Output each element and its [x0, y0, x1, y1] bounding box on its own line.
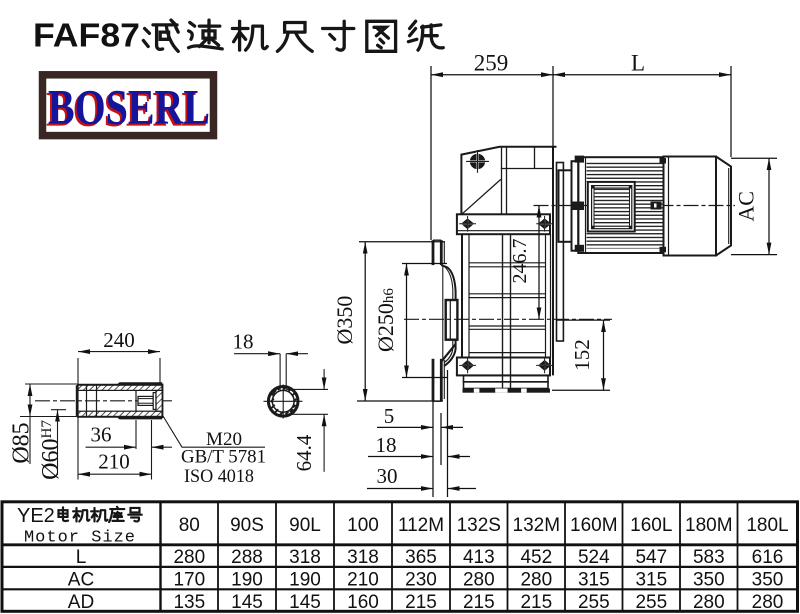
svg-text:280: 280: [752, 592, 784, 613]
svg-text:132S: 132S: [457, 515, 501, 536]
svg-text:Ø85: Ø85: [9, 422, 35, 463]
svg-text:210: 210: [347, 570, 379, 591]
svg-text:L: L: [76, 547, 87, 568]
svg-text:135: 135: [173, 592, 205, 613]
svg-text:350: 350: [693, 570, 725, 591]
svg-text:ISO 4018: ISO 4018: [184, 466, 254, 487]
svg-text:180M: 180M: [685, 515, 733, 536]
svg-text:215: 215: [463, 592, 495, 613]
svg-text:280: 280: [173, 547, 205, 568]
svg-text:246.7: 246.7: [509, 239, 531, 284]
svg-text:365: 365: [405, 547, 437, 568]
svg-text:145: 145: [231, 592, 263, 613]
svg-text:215: 215: [405, 592, 437, 613]
svg-text:255: 255: [578, 592, 610, 613]
svg-text:L: L: [631, 51, 645, 76]
svg-text:5: 5: [384, 404, 395, 428]
svg-text:452: 452: [520, 547, 552, 568]
svg-text:AD: AD: [68, 592, 94, 613]
svg-text:210: 210: [98, 450, 130, 474]
svg-text:BOSERL: BOSERL: [48, 79, 210, 135]
svg-text:30: 30: [377, 464, 398, 488]
svg-text:90L: 90L: [289, 515, 321, 536]
svg-text:AC: AC: [68, 570, 94, 591]
svg-text:190: 190: [231, 570, 263, 591]
svg-text:152: 152: [570, 339, 594, 371]
svg-text:255: 255: [635, 592, 667, 613]
svg-text:180L: 180L: [746, 515, 788, 536]
svg-text:190: 190: [289, 570, 321, 591]
svg-text:350: 350: [752, 570, 784, 591]
svg-text:280: 280: [520, 570, 552, 591]
svg-text:524: 524: [578, 547, 610, 568]
svg-text:90S: 90S: [230, 515, 264, 536]
svg-text:318: 318: [289, 547, 321, 568]
svg-text:18: 18: [376, 433, 397, 457]
svg-text:318: 318: [347, 547, 379, 568]
svg-text:280: 280: [693, 592, 725, 613]
svg-text:170: 170: [173, 570, 205, 591]
svg-text:230: 230: [405, 570, 437, 591]
svg-text:36: 36: [91, 423, 112, 447]
svg-text:547: 547: [635, 547, 667, 568]
svg-text:132M: 132M: [513, 515, 561, 536]
svg-text:GB/T 5781: GB/T 5781: [181, 447, 266, 468]
svg-text:Motor Size: Motor Size: [24, 529, 136, 548]
svg-text:FAF87: FAF87: [33, 17, 140, 54]
svg-text:259: 259: [474, 51, 509, 76]
svg-text:80: 80: [179, 515, 200, 536]
svg-text:145: 145: [289, 592, 321, 613]
svg-text:413: 413: [463, 547, 495, 568]
svg-text:AC: AC: [734, 191, 759, 222]
svg-text:YE2: YE2: [17, 505, 55, 527]
svg-text:Ø350: Ø350: [332, 296, 357, 345]
svg-text:616: 616: [752, 547, 784, 568]
svg-text:315: 315: [635, 570, 667, 591]
svg-text:112M: 112M: [398, 515, 444, 536]
svg-text:160M: 160M: [570, 515, 618, 536]
svg-text:240: 240: [103, 328, 135, 352]
svg-text:288: 288: [231, 547, 263, 568]
svg-text:18: 18: [233, 330, 254, 354]
svg-text:583: 583: [693, 547, 725, 568]
svg-text:280: 280: [463, 570, 495, 591]
svg-text:315: 315: [578, 570, 610, 591]
svg-text:215: 215: [520, 592, 552, 613]
svg-text:160L: 160L: [630, 515, 672, 536]
svg-text:160: 160: [347, 592, 379, 613]
svg-text:64.4: 64.4: [292, 434, 316, 471]
svg-text:100: 100: [347, 515, 379, 536]
